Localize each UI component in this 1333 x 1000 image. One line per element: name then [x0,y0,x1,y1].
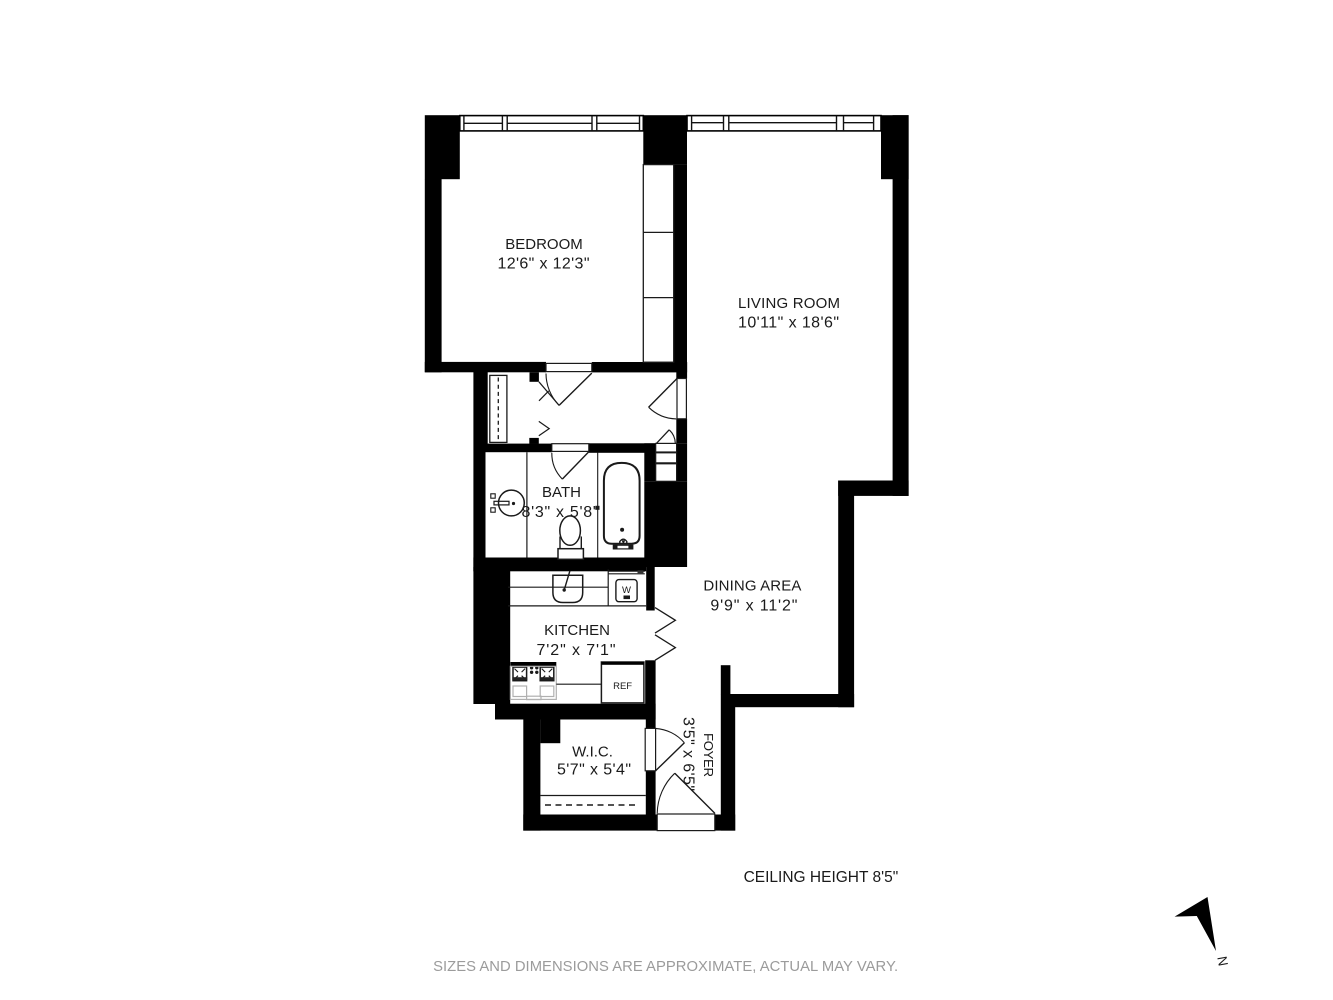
svg-text:7'2" x 7'1": 7'2" x 7'1" [537,642,616,659]
svg-text:LIVING ROOM: LIVING ROOM [738,295,840,312]
svg-text:DINING AREA: DINING AREA [703,577,801,594]
svg-text:BATH: BATH [542,484,581,501]
svg-text:W: W [622,585,631,596]
svg-text:8'3" x 5'8": 8'3" x 5'8" [522,504,599,521]
svg-text:SIZES AND DIMENSIONS ARE APPRO: SIZES AND DIMENSIONS ARE APPROXIMATE, AC… [433,959,898,975]
svg-text:FOYER: FOYER [701,733,716,777]
svg-text:12'6" x 12'3": 12'6" x 12'3" [498,256,590,273]
svg-text:10'11" x 18'6": 10'11" x 18'6" [738,314,839,331]
svg-text:3'5" x 6'5": 3'5" x 6'5" [680,717,697,791]
svg-text:BEDROOM: BEDROOM [505,236,583,253]
svg-text:REF: REF [613,681,632,692]
svg-text:KITCHEN: KITCHEN [544,622,610,639]
svg-text:CEILING HEIGHT 8'5": CEILING HEIGHT 8'5" [744,869,899,886]
svg-text:W.I.C.: W.I.C. [572,743,613,760]
svg-text:5'7" x 5'4": 5'7" x 5'4" [557,761,631,778]
svg-text:9'9" x 11'2": 9'9" x 11'2" [710,597,797,614]
